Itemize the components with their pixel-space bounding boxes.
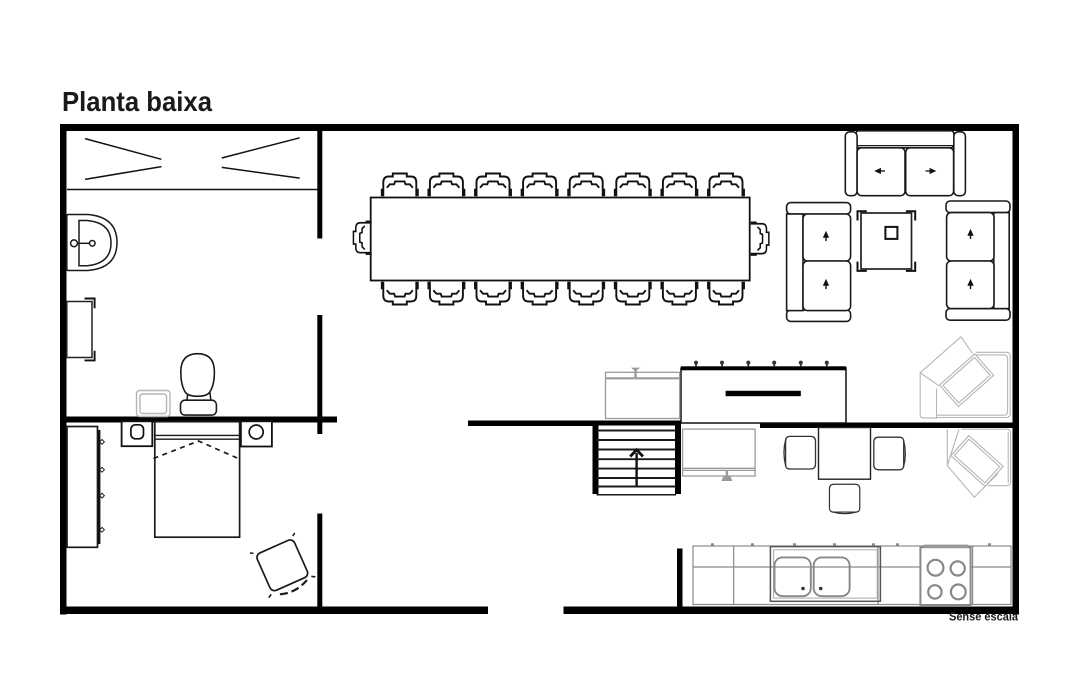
svg-text:Sense escala: Sense escala bbox=[949, 610, 1018, 624]
svg-text:Planta baixa: Planta baixa bbox=[62, 86, 212, 117]
